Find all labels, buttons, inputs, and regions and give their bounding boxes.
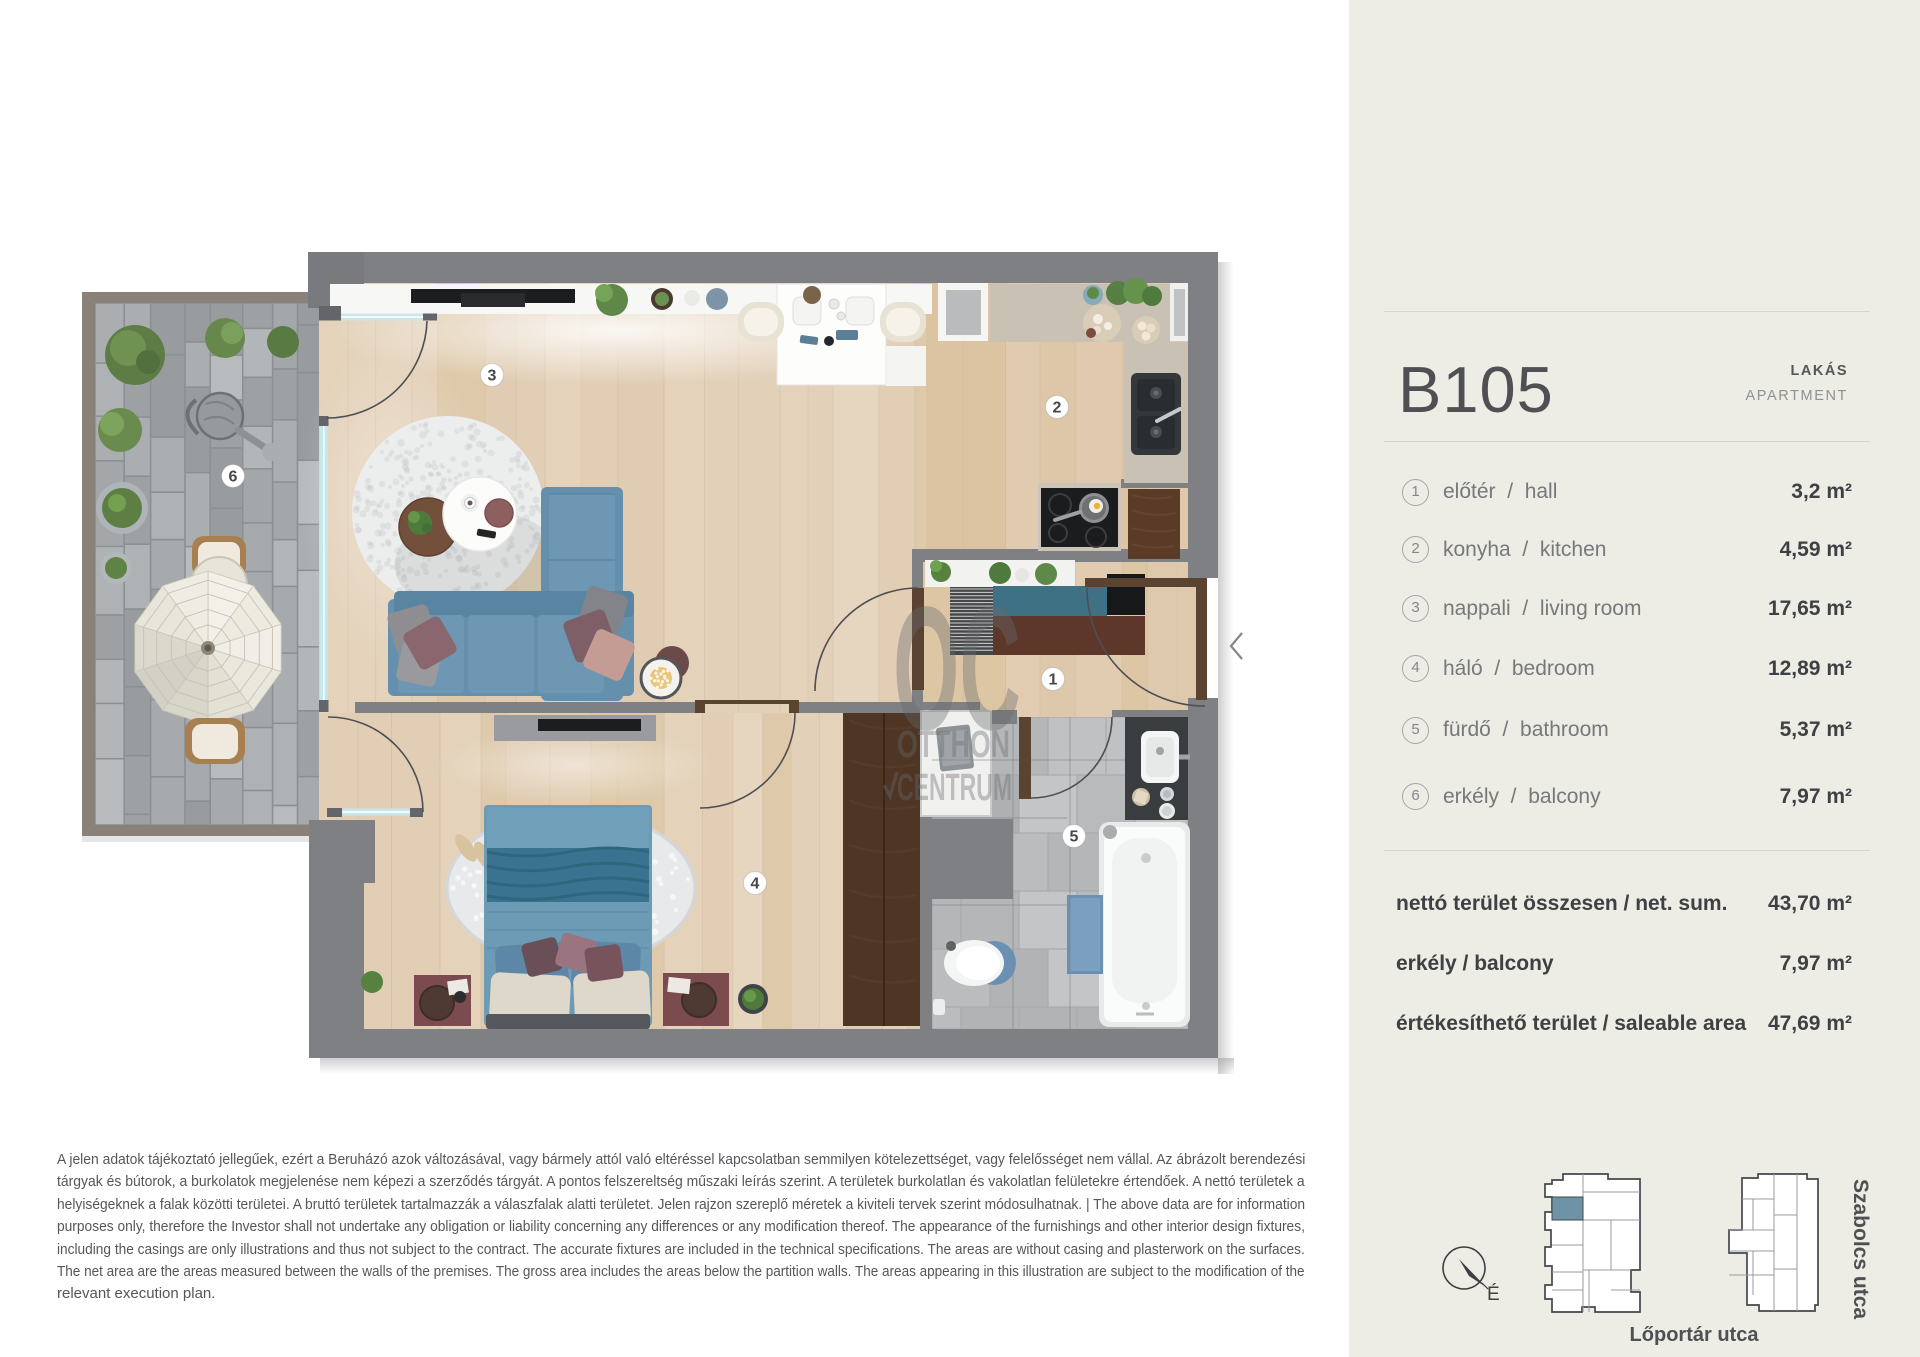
svg-text:5: 5 bbox=[1070, 829, 1079, 846]
svg-text:1: 1 bbox=[1049, 672, 1058, 689]
svg-text:CENTRUM: CENTRUM bbox=[897, 767, 1012, 809]
svg-text:É: É bbox=[1487, 1284, 1500, 1305]
svg-text:4: 4 bbox=[751, 876, 760, 893]
svg-text:3: 3 bbox=[488, 368, 497, 385]
svg-text:Szabolcs utca: Szabolcs utca bbox=[1849, 1179, 1872, 1319]
svg-text:Lőportár utca: Lőportár utca bbox=[1630, 1324, 1760, 1346]
svg-text:OTTHON: OTTHON bbox=[897, 724, 1010, 766]
svg-text:6: 6 bbox=[229, 469, 238, 486]
svg-text:2: 2 bbox=[1053, 400, 1062, 417]
